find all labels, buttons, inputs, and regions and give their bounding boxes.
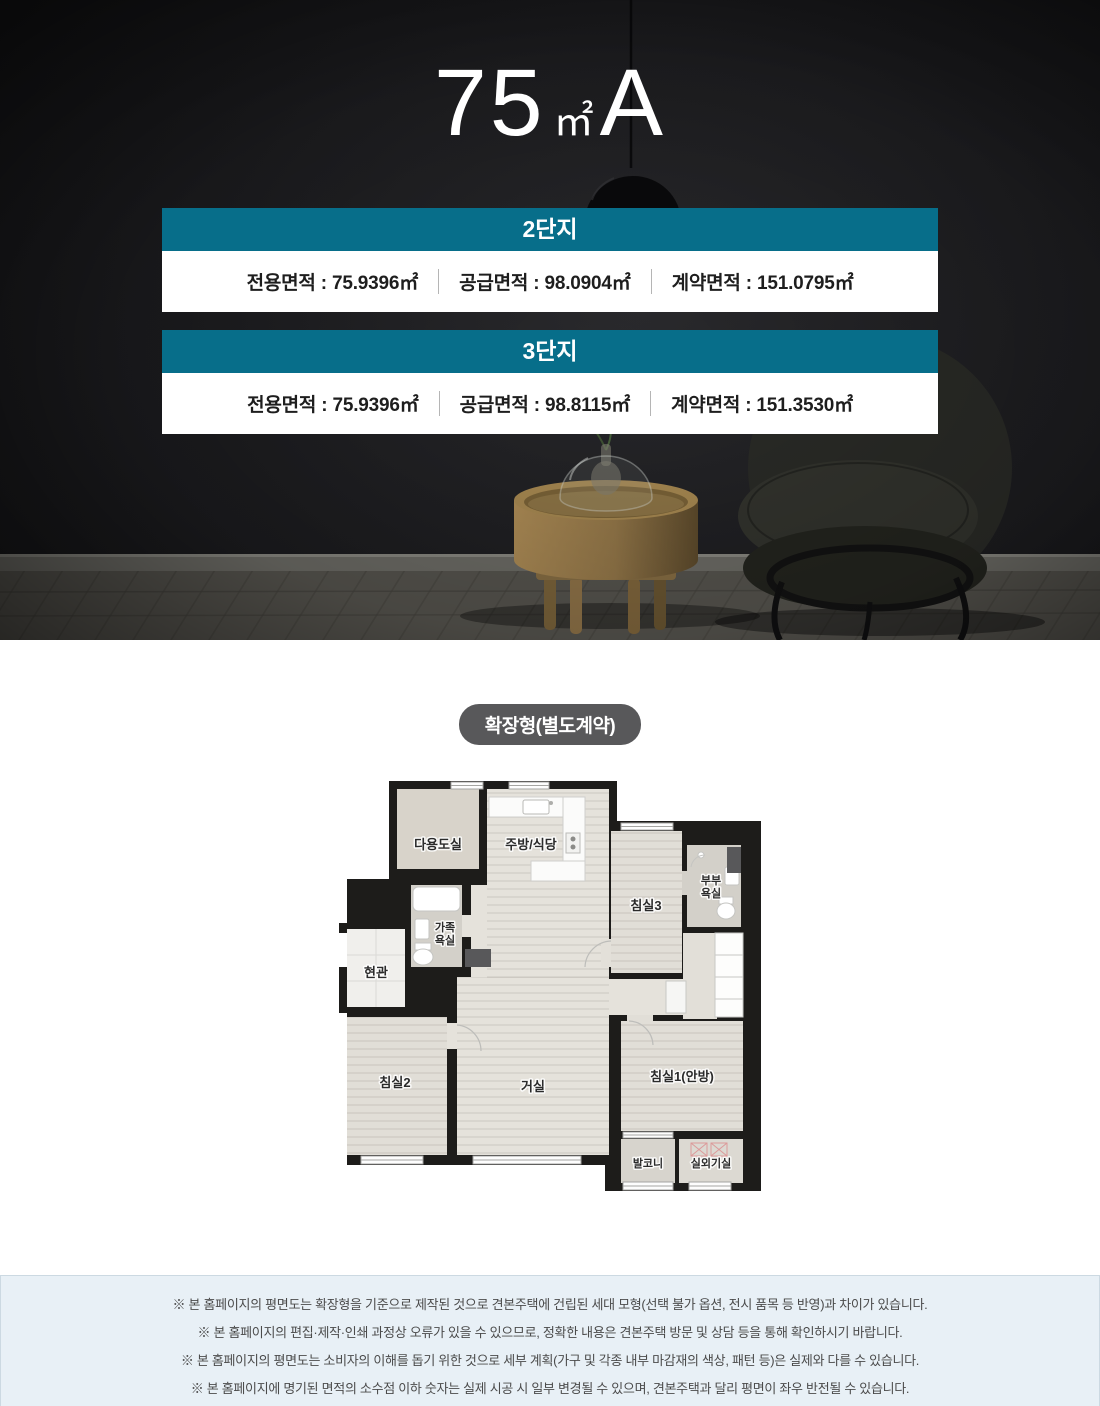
complex-2-card: 2단지 전용면적 : 75.9396㎡ 공급면적 : 98.0904㎡ 계약면적…	[162, 208, 938, 312]
room-label-family-bath-1: 가족	[435, 920, 455, 934]
notice-line-2: ※ 본 홈페이지의 편집·제작·인쇄 과정상 오류가 있을 수 있으므로, 정확…	[1, 1319, 1099, 1347]
room-utility	[397, 789, 479, 869]
room-label-living: 거실	[521, 1079, 545, 1094]
room-label-family-bath-2: 욕실	[435, 933, 455, 947]
title-unit: ㎡	[554, 100, 594, 144]
complex-2-name: 2단지	[522, 216, 577, 242]
notice-section: ※ 본 홈페이지의 평면도는 확장형을 기준으로 제작된 것으로 견본주택에 건…	[0, 1275, 1100, 1406]
divider	[438, 269, 439, 294]
complex-3-contract-area: 계약면적 : 151.3530㎡	[671, 390, 853, 417]
complex-2-header: 2단지	[162, 208, 938, 251]
toilet	[717, 903, 735, 919]
complex-2-supply-area: 공급면적 : 98.0904㎡	[459, 268, 631, 295]
divider	[650, 391, 651, 416]
complex-3-name: 3단지	[522, 338, 577, 364]
room-label-bedroom2: 침실2	[379, 1075, 410, 1090]
notice-line-1: ※ 본 홈페이지의 평면도는 확장형을 기준으로 제작된 것으로 견본주택에 건…	[1, 1291, 1099, 1319]
complex-2-exclusive-area: 전용면적 : 75.9396㎡	[247, 268, 419, 295]
notice-line-3: ※ 본 홈페이지의 평면도는 소비자의 이해를 돕기 위한 것으로 세부 계획(…	[1, 1347, 1099, 1375]
room-label-master-bath-2: 욕실	[701, 886, 721, 900]
sink	[415, 919, 429, 939]
page: 75㎡A 2단지 전용면적 : 75.9396㎡ 공급면적 : 98.0904㎡…	[0, 0, 1100, 1406]
complex-3-exclusive-area: 전용면적 : 75.9396㎡	[247, 390, 419, 417]
complex-3-header: 3단지	[162, 330, 938, 373]
bathtub	[413, 887, 460, 911]
complex-3-supply-area: 공급면적 : 98.8115㎡	[460, 390, 630, 417]
complex-2-areas: 전용면적 : 75.9396㎡ 공급면적 : 98.0904㎡ 계약면적 : 1…	[162, 251, 938, 312]
room-label-kitchen: 주방/식당	[505, 837, 556, 852]
floorplan: 다용도실 주방/식당 침실3 부부 욕실 가족 욕실 현관 침실2 거실 침실1…	[339, 781, 761, 1191]
divider	[651, 269, 652, 294]
room-label-balcony: 발코니	[633, 1156, 663, 1170]
room-label-entrance: 현관	[364, 965, 388, 980]
kitchen-sink	[523, 800, 549, 814]
room-label-utility: 다용도실	[414, 837, 462, 852]
room-label-ac-room: 실외기실	[691, 1156, 731, 1170]
shaft	[465, 949, 491, 967]
hero-section: 75㎡A 2단지 전용면적 : 75.9396㎡ 공급면적 : 98.0904㎡…	[0, 0, 1100, 640]
title-type: A	[600, 50, 666, 156]
stove	[566, 833, 580, 853]
room-label-bedroom1: 침실1(안방)	[650, 1069, 714, 1084]
floorplan-section: 확장형(별도계약)	[0, 640, 1100, 1191]
complex-3-areas: 전용면적 : 75.9396㎡ 공급면적 : 98.8115㎡ 계약면적 : 1…	[162, 373, 938, 434]
shaft	[727, 847, 741, 873]
room-label-bedroom3: 침실3	[630, 898, 661, 913]
room-label-master-bath-1: 부부	[701, 874, 721, 887]
complex-3-card: 3단지 전용면적 : 75.9396㎡ 공급면적 : 98.8115㎡ 계약면적…	[162, 330, 938, 434]
complex-2-contract-area: 계약면적 : 151.0795㎡	[672, 268, 854, 295]
divider	[439, 391, 440, 416]
page-title: 75㎡A	[0, 0, 1100, 156]
toilet	[413, 949, 433, 965]
expansion-type-badge[interactable]: 확장형(별도계약)	[459, 704, 642, 745]
room-corridor	[683, 933, 717, 1019]
notice-line-4: ※ 본 홈페이지에 명기된 면적의 소수점 이하 숫자는 실제 시공 시 일부 …	[1, 1375, 1099, 1403]
title-number: 75	[434, 50, 546, 156]
